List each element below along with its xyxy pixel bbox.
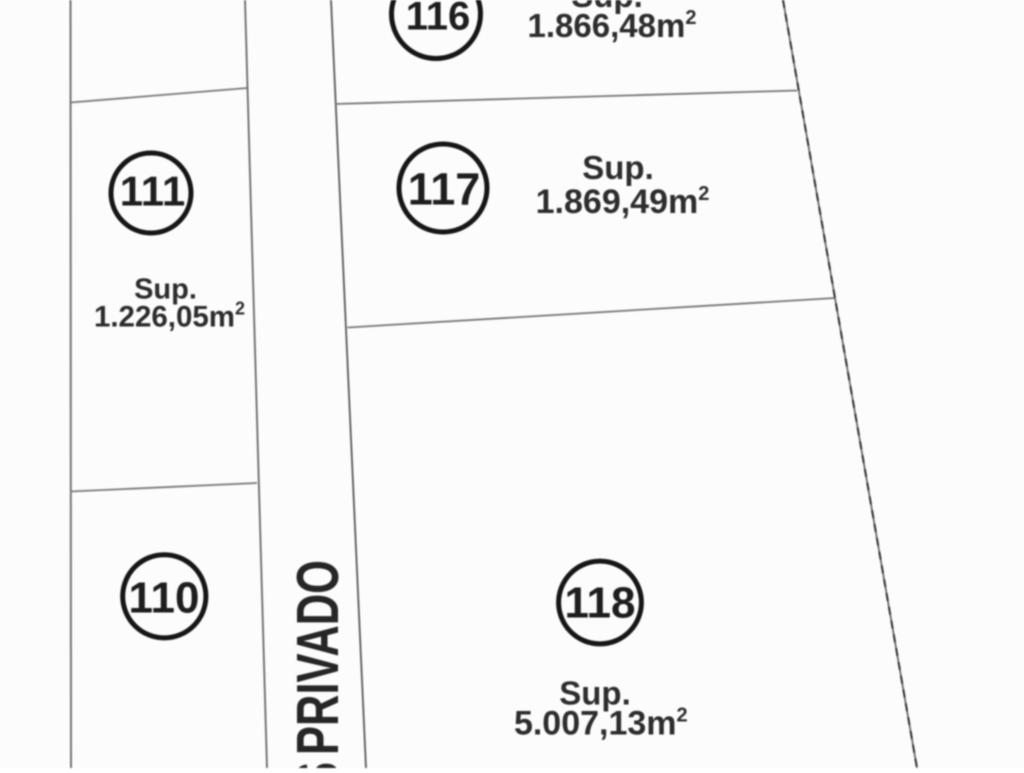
svg-text:1.866,48m2: 1.866,48m2 [528,7,697,44]
svg-text:PRIVADO: PRIVADO [285,560,351,755]
svg-text:S: S [285,762,351,768]
svg-text:116: 116 [406,0,471,39]
svg-text:5.007,13m2: 5.007,13m2 [514,705,688,743]
svg-text:117: 117 [408,164,481,215]
svg-text:1.226,05m2: 1.226,05m2 [94,299,245,334]
svg-text:1.869,49m2: 1.869,49m2 [536,183,710,221]
svg-text:110: 110 [129,574,200,623]
svg-text:111: 111 [120,168,185,215]
svg-text:Sup.: Sup. [582,149,654,186]
svg-text:118: 118 [565,579,636,628]
